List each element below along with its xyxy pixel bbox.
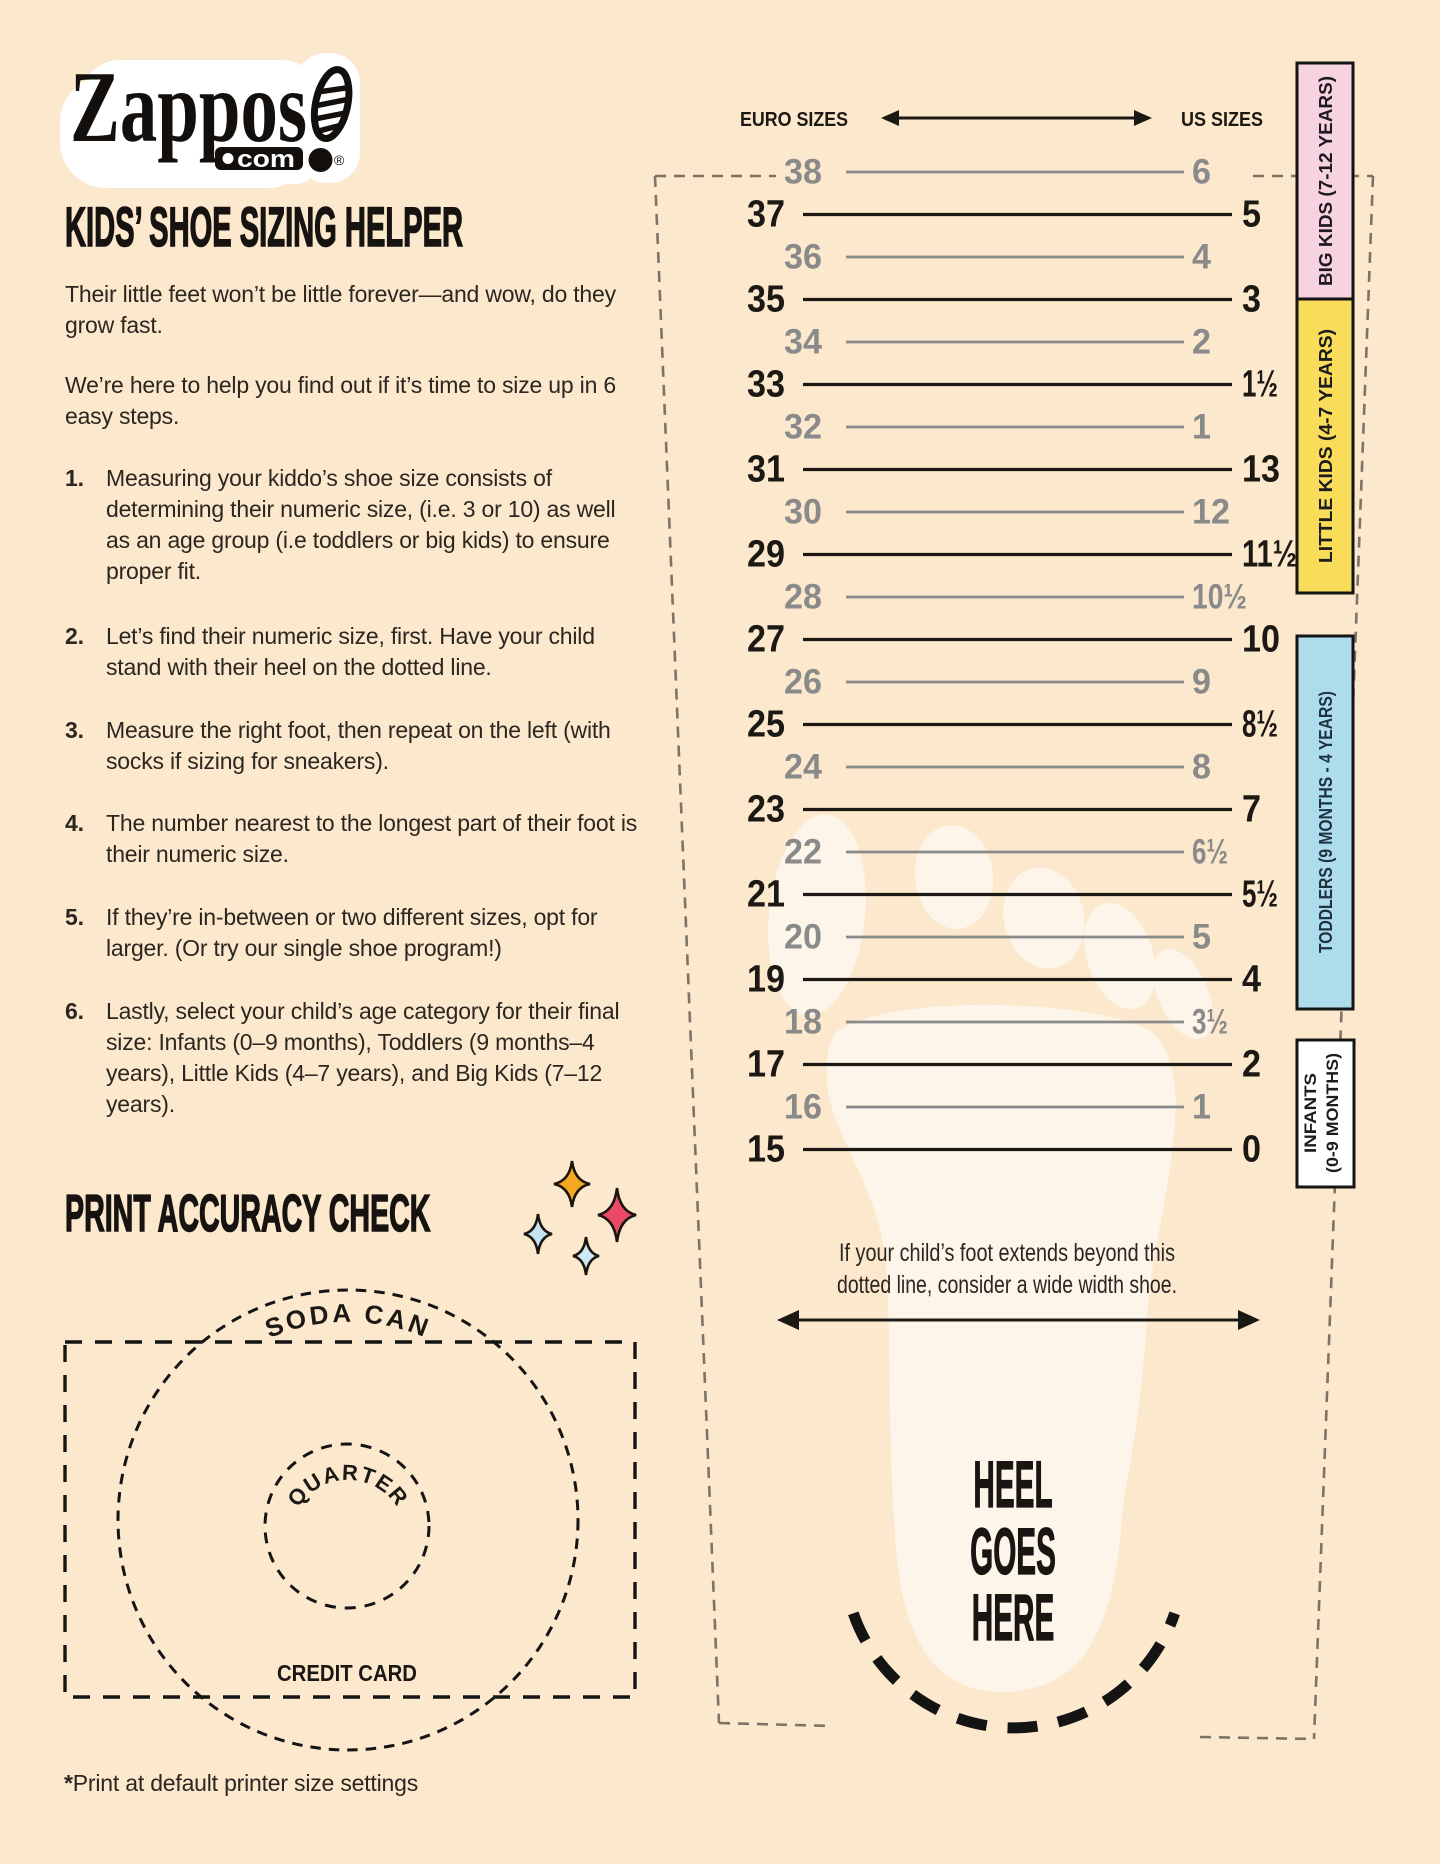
svg-text:23: 23 <box>747 789 785 831</box>
svg-text:25: 25 <box>747 704 785 746</box>
svg-text:QUARTER: QUARTER <box>282 1460 413 1511</box>
svg-text:If your child’s foot extends b: If your child’s foot extends beyond this <box>839 1239 1175 1267</box>
svg-text:INFANTS: INFANTS <box>1301 1073 1320 1153</box>
svg-text:26: 26 <box>784 663 822 702</box>
svg-text:1½: 1½ <box>1242 364 1278 406</box>
svg-text:(0-9 MONTHS): (0-9 MONTHS) <box>1323 1053 1342 1173</box>
svg-text:HERE: HERE <box>972 1581 1054 1655</box>
svg-text:10½: 10½ <box>1192 578 1247 617</box>
svg-text:37: 37 <box>747 194 785 236</box>
svg-text:13: 13 <box>1242 449 1280 491</box>
svg-text:31: 31 <box>747 449 785 491</box>
svg-text:15: 15 <box>747 1129 785 1171</box>
svg-text:TODDLERS (9 MONTHS - 4 YEARS): TODDLERS (9 MONTHS - 4 YEARS) <box>1316 691 1336 953</box>
svg-text:9: 9 <box>1192 663 1211 702</box>
svg-text:2: 2 <box>1192 323 1211 362</box>
svg-text:6½: 6½ <box>1192 833 1228 872</box>
svg-text:28: 28 <box>784 578 822 617</box>
svg-text:5: 5 <box>1192 918 1211 957</box>
svg-text:1: 1 <box>1192 1088 1211 1127</box>
svg-text:0: 0 <box>1242 1129 1261 1171</box>
svg-text:27: 27 <box>747 619 785 661</box>
svg-text:21: 21 <box>747 874 785 916</box>
svg-text:20: 20 <box>784 918 822 957</box>
svg-text:17: 17 <box>747 1044 785 1086</box>
svg-text:12: 12 <box>1192 493 1230 532</box>
svg-text:SODA CAN: SODA CAN <box>261 1298 435 1344</box>
svg-text:22: 22 <box>784 833 822 872</box>
svg-text:5: 5 <box>1242 194 1261 236</box>
svg-text:1: 1 <box>1192 408 1211 447</box>
svg-text:BIG KIDS (7-12 YEARS): BIG KIDS (7-12 YEARS) <box>1315 76 1336 286</box>
svg-text:24: 24 <box>784 748 823 787</box>
svg-text:CREDIT CARD: CREDIT CARD <box>277 1660 417 1686</box>
svg-text:3½: 3½ <box>1192 1003 1228 1042</box>
svg-text:4: 4 <box>1192 238 1212 277</box>
svg-text:EURO SIZES: EURO SIZES <box>740 109 848 131</box>
svg-text:29: 29 <box>747 534 785 576</box>
svg-text:16: 16 <box>784 1088 822 1127</box>
svg-text:35: 35 <box>747 279 785 321</box>
svg-text:18: 18 <box>784 1003 822 1042</box>
svg-text:7: 7 <box>1242 789 1261 831</box>
svg-text:19: 19 <box>747 959 785 1001</box>
svg-text:8½: 8½ <box>1242 704 1278 746</box>
svg-text:34: 34 <box>784 323 823 362</box>
svg-text:dotted line, consider a wide w: dotted line, consider a wide width shoe. <box>837 1271 1177 1299</box>
svg-text:2: 2 <box>1242 1044 1261 1086</box>
svg-text:8: 8 <box>1192 748 1211 787</box>
svg-text:5½: 5½ <box>1242 874 1278 916</box>
svg-text:32: 32 <box>784 408 822 447</box>
svg-text:HEEL: HEEL <box>973 1448 1052 1522</box>
svg-text:GOES: GOES <box>970 1515 1056 1589</box>
svg-text:11½: 11½ <box>1242 534 1297 576</box>
svg-text:6: 6 <box>1192 153 1211 192</box>
svg-text:4: 4 <box>1242 959 1261 1001</box>
svg-text:38: 38 <box>784 153 822 192</box>
svg-text:33: 33 <box>747 364 785 406</box>
svg-text:10: 10 <box>1242 619 1280 661</box>
svg-text:3: 3 <box>1242 279 1261 321</box>
svg-text:30: 30 <box>784 493 822 532</box>
svg-text:36: 36 <box>784 238 822 277</box>
svg-text:US SIZES: US SIZES <box>1181 109 1263 131</box>
svg-text:LITTLE KIDS (4-7 YEARS): LITTLE KIDS (4-7 YEARS) <box>1315 329 1336 563</box>
